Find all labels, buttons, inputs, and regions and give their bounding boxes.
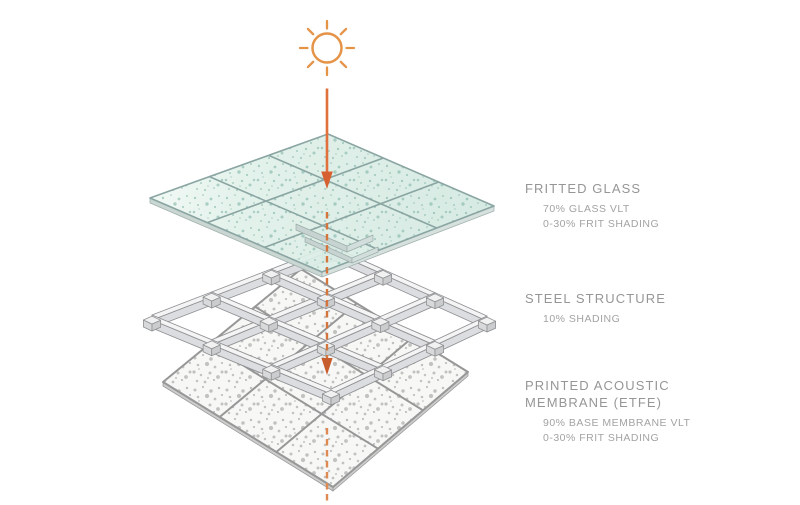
label-group-steel-structure: STEEL STRUCTURE 10% SHADING: [525, 290, 703, 327]
exploded-roof-layers-diagram: FRITTED GLASS 70% GLASS VLT 0-30% FRIT S…: [0, 0, 800, 505]
layer-title: FRITTED GLASS: [525, 180, 703, 197]
legend-column: FRITTED GLASS 70% GLASS VLT 0-30% FRIT S…: [0, 0, 800, 505]
layer-details: 70% GLASS VLT 0-30% FRIT SHADING: [543, 202, 703, 232]
layer-detail: 70% GLASS VLT: [543, 202, 703, 217]
layer-details: 90% BASE MEMBRANE VLT 0-30% FRIT SHADING: [543, 416, 703, 446]
layer-detail: 90% BASE MEMBRANE VLT: [543, 416, 703, 431]
layer-detail: 0-30% FRIT SHADING: [543, 431, 703, 446]
label-group-fritted-glass: FRITTED GLASS 70% GLASS VLT 0-30% FRIT S…: [525, 180, 703, 232]
layer-details: 10% SHADING: [543, 312, 703, 327]
layer-detail: 10% SHADING: [543, 312, 703, 327]
layer-title: STEEL STRUCTURE: [525, 290, 703, 307]
layer-detail: 0-30% FRIT SHADING: [543, 217, 703, 232]
label-group-membrane: PRINTED ACOUSTIC MEMBRANE (ETFE) 90% BAS…: [525, 377, 703, 446]
layer-title: PRINTED ACOUSTIC MEMBRANE (ETFE): [525, 377, 703, 411]
